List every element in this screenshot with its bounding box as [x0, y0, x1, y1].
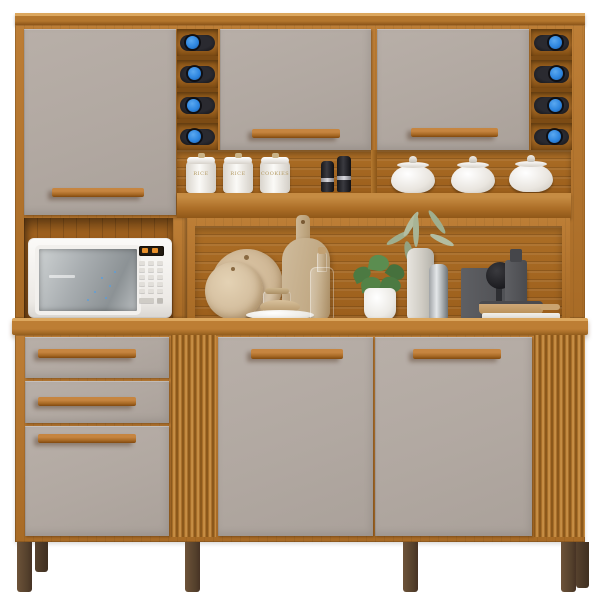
wine-cubby: [177, 92, 218, 119]
product-photo-stage: RICE RICE COOKIES: [0, 0, 600, 600]
organizer-bottle-cap: [510, 249, 522, 262]
cabinet-leg-front-left: [17, 542, 32, 592]
cabinet-leg-mid-left: [185, 542, 200, 592]
countertop: [12, 318, 588, 335]
canister-label: RICE: [223, 171, 253, 177]
wine-cubby: [177, 29, 218, 56]
canister-label: COOKIES: [260, 171, 290, 177]
microwave-display: [139, 246, 164, 256]
lower-left-door: [218, 337, 373, 536]
wine-cubby: [177, 60, 218, 87]
wine-bottle-cap: [187, 99, 200, 112]
cabinet-leg-back-left: [35, 542, 48, 572]
cabinet-leg-mid-right: [403, 542, 418, 592]
sugar-pot: [391, 156, 435, 193]
shelf-fascia: [177, 193, 571, 218]
wine-bottle-cap: [188, 67, 201, 80]
niche-divider: [173, 218, 187, 318]
wine-bottle-cap: [549, 99, 562, 112]
sugar-pot: [451, 156, 495, 193]
drawer-bottom-door-handle: [38, 434, 136, 443]
upper-middle-door-handle: [252, 129, 340, 138]
fluted-panel-right: [534, 335, 585, 537]
upper-right-door-handle: [411, 128, 498, 137]
cabinet-leg-front-right: [561, 542, 576, 592]
drawer-top-handle: [38, 349, 136, 358]
salt-grinder: [337, 156, 351, 192]
glass-bottle: [310, 267, 334, 320]
steel-flask: [429, 264, 448, 320]
microwave-brand: [49, 275, 75, 278]
glass-jar-lid: [265, 288, 289, 294]
lower-right-door: [375, 337, 532, 536]
wine-cubby: [531, 92, 572, 119]
shelf-divider: [371, 150, 377, 193]
pan-handle: [540, 304, 560, 310]
upper-left-door-handle: [52, 188, 144, 197]
microwave-control-panel: [138, 245, 166, 311]
wine-cubby: [531, 29, 572, 56]
canister-rice-1: RICE: [186, 153, 216, 193]
lower-right-door-handle: [413, 349, 501, 359]
green-plant-pot: [364, 288, 396, 320]
bottle-cork: [318, 247, 326, 254]
lower-left-door-handle: [251, 349, 343, 359]
cabinet-cornice: [15, 13, 585, 25]
pepper-grinder: [321, 161, 334, 192]
wine-bottle-cap: [548, 130, 561, 143]
sugar-pot: [509, 155, 553, 192]
wine-rack-left: [177, 29, 218, 150]
wine-cubby: [177, 123, 218, 150]
microwave-door: [35, 245, 141, 315]
fluted-panel-left: [171, 335, 216, 537]
microwave: [28, 238, 172, 318]
canister-label: RICE: [186, 171, 216, 177]
wine-rack-right: [531, 29, 572, 150]
drawer-middle-handle: [38, 397, 136, 406]
wine-cubby: [531, 123, 572, 150]
canister-rice-2: RICE: [223, 153, 253, 193]
wine-bottle-cap: [186, 36, 199, 49]
canister-cookies: COOKIES: [260, 153, 290, 193]
cabinet-leg-back-right: [576, 542, 589, 588]
wine-cubby: [531, 60, 572, 87]
